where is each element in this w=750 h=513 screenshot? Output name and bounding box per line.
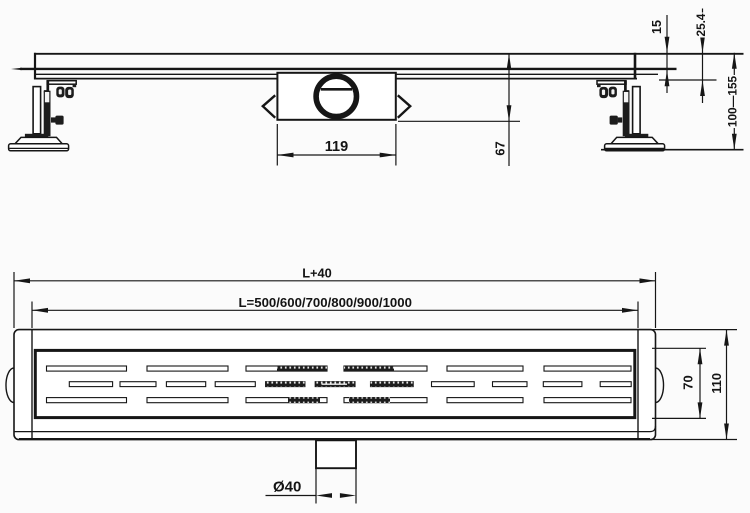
svg-text:15: 15 [650,20,664,34]
svg-text:L+40: L+40 [302,266,332,281]
svg-text:110: 110 [709,373,724,394]
svg-text:100—155: 100—155 [726,75,740,127]
svg-text:119: 119 [325,139,348,155]
svg-text:L=500/600/700/800/900/1000: L=500/600/700/800/900/1000 [239,295,412,310]
svg-text:25.4: 25.4 [694,13,708,36]
svg-text:Ø40: Ø40 [273,479,301,496]
svg-text:70: 70 [681,375,696,389]
svg-text:67: 67 [493,141,508,155]
